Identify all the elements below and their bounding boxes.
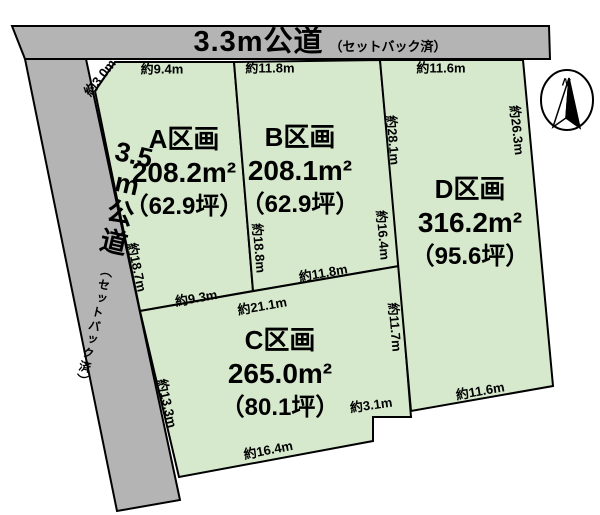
parcel-d-name: D区画 (380, 173, 560, 206)
land-plot-diagram: 3.3m公道 （セットバック済） 3.5 m 公 道 （セットバック済） A区画… (0, 0, 600, 515)
parcel-b-label: B区画 208.1m² （62.9坪） (210, 121, 390, 221)
dim-d-top: 約11.6m (416, 58, 465, 77)
parcel-b-tsubo: （62.9坪） (210, 188, 390, 221)
parcel-d-area: 316.2m² (380, 206, 560, 240)
road-left-setback-note: （セットバック済） (72, 263, 117, 390)
parcel-b-area: 208.1m² (210, 154, 390, 188)
parcel-d-tsubo: （95.6坪） (380, 240, 560, 273)
parcel-d-label: D区画 316.2m² （95.6坪） (380, 173, 560, 273)
parcel-c-tsubo: （80.1坪） (190, 391, 370, 424)
road-top-label: 3.3m公道 （セットバック済） (110, 25, 530, 59)
parcel-b-name: B区画 (210, 121, 390, 154)
dim-a-top: 約9.4m (141, 59, 184, 78)
dim-b-top: 約11.8m (245, 58, 294, 77)
parcel-c-label: C区画 265.0m² （80.1坪） (190, 324, 370, 424)
parcel-c-area: 265.0m² (190, 357, 370, 391)
road-top-setback-note: （セットバック済） (330, 30, 447, 55)
road-top-name: 3.3m公道 (193, 28, 323, 57)
compass-north-label: N (561, 77, 571, 90)
parcel-c-name: C区画 (190, 324, 370, 357)
